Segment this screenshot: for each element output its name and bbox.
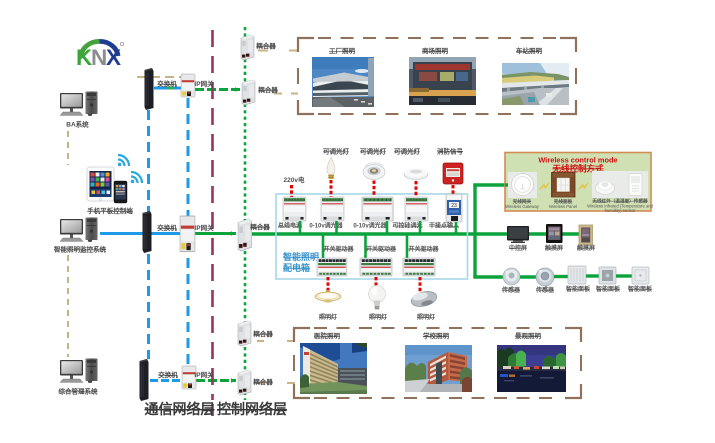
- svg-text:N: N: [91, 45, 107, 70]
- svg-text:学校照明: 学校照明: [423, 331, 450, 340]
- svg-text:传感器: 传感器: [535, 286, 555, 294]
- svg-text:智能面板: 智能面板: [596, 285, 621, 293]
- svg-text:X: X: [106, 45, 121, 70]
- svg-text:中控屏: 中控屏: [509, 244, 527, 252]
- svg-text:干接点输入: 干接点输入: [429, 222, 459, 230]
- svg-text:通信网络层: 通信网络层: [145, 401, 215, 417]
- svg-text:开关驱动器: 开关驱动器: [408, 245, 439, 253]
- svg-text:0-10v调光器: 0-10v调光器: [353, 222, 387, 230]
- svg-text:交换机: 交换机: [157, 79, 177, 88]
- svg-text:220v电: 220v电: [284, 175, 305, 184]
- svg-text:耦合器: 耦合器: [253, 329, 273, 338]
- svg-text:可调光灯: 可调光灯: [360, 147, 387, 156]
- svg-text:耦合器: 耦合器: [253, 377, 273, 386]
- svg-text:总线电源: 总线电源: [278, 222, 302, 230]
- svg-text:IP网关: IP网关: [194, 370, 214, 379]
- svg-text:BA系统: BA系统: [66, 120, 89, 129]
- svg-text:耦合器: 耦合器: [258, 85, 278, 94]
- svg-text:可控硅调光: 可控硅调光: [392, 222, 422, 230]
- svg-text:工厂照明: 工厂照明: [329, 46, 356, 55]
- svg-text:控制网络层: 控制网络层: [217, 401, 287, 417]
- svg-text:humidity) sensor: humidity) sensor: [605, 208, 636, 213]
- svg-text:Wireless Panel: Wireless Panel: [549, 204, 577, 209]
- svg-text:交换机: 交换机: [158, 370, 178, 379]
- svg-text:耦合器: 耦合器: [256, 41, 276, 50]
- svg-text:触摸屏: 触摸屏: [576, 244, 595, 252]
- svg-text:传感器: 传感器: [501, 286, 521, 294]
- svg-text:智能照明: 智能照明: [283, 251, 319, 262]
- svg-text:开关驱动器: 开关驱动器: [366, 245, 397, 253]
- svg-text:开关驱动器: 开关驱动器: [323, 245, 354, 253]
- svg-text:耦合器: 耦合器: [250, 222, 270, 231]
- svg-text:IP网关: IP网关: [194, 79, 214, 88]
- svg-text:照明灯: 照明灯: [417, 313, 435, 321]
- svg-text:可调光灯: 可调光灯: [394, 147, 421, 156]
- svg-text:触摸屏: 触摸屏: [544, 244, 563, 252]
- svg-text:智能面板: 智能面板: [566, 285, 591, 293]
- svg-text:医院照明: 医院照明: [314, 331, 341, 340]
- svg-text:消防信号: 消防信号: [437, 147, 464, 156]
- svg-text:照明灯: 照明灯: [319, 313, 337, 321]
- svg-text:23: 23: [451, 203, 457, 209]
- svg-text:配电箱: 配电箱: [283, 262, 310, 273]
- svg-text:0-10v调光器: 0-10v调光器: [309, 222, 343, 230]
- svg-text:商场照明: 商场照明: [422, 46, 449, 55]
- svg-text:车站照明: 车站照明: [516, 46, 543, 55]
- svg-text:照明灯: 照明灯: [369, 313, 387, 321]
- svg-text:景观照明: 景观照明: [515, 331, 542, 340]
- svg-text:IP网关: IP网关: [194, 223, 214, 232]
- svg-text:智能照明监控系统: 智能照明监控系统: [54, 245, 107, 254]
- svg-text:手机平板控制端: 手机平板控制端: [87, 206, 133, 215]
- svg-text:智能面板: 智能面板: [628, 285, 653, 293]
- svg-text:交换机: 交换机: [157, 223, 177, 232]
- svg-text:Wireless Gateway: Wireless Gateway: [505, 204, 540, 209]
- svg-text:综合管理系统: 综合管理系统: [59, 387, 99, 396]
- svg-text:可调光灯: 可调光灯: [323, 147, 350, 156]
